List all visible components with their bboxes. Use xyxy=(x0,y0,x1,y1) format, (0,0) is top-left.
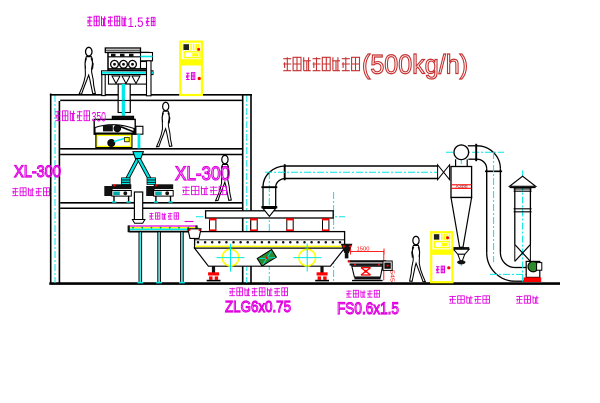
svg-text:A300: A300 xyxy=(456,184,469,189)
svg-text:350: 350 xyxy=(92,109,107,125)
svg-text:ZLG6x0.75: ZLG6x0.75 xyxy=(225,299,291,316)
svg-text:(500kg/h): (500kg/h) xyxy=(362,50,468,80)
svg-text:FS0.6x1.5: FS0.6x1.5 xyxy=(337,299,399,318)
svg-text:XL-300: XL-300 xyxy=(175,164,230,185)
svg-text:545: 545 xyxy=(389,270,395,282)
svg-text:1500: 1500 xyxy=(357,247,370,253)
svg-text:XL-300: XL-300 xyxy=(14,162,61,181)
svg-text:1.5: 1.5 xyxy=(128,14,144,30)
